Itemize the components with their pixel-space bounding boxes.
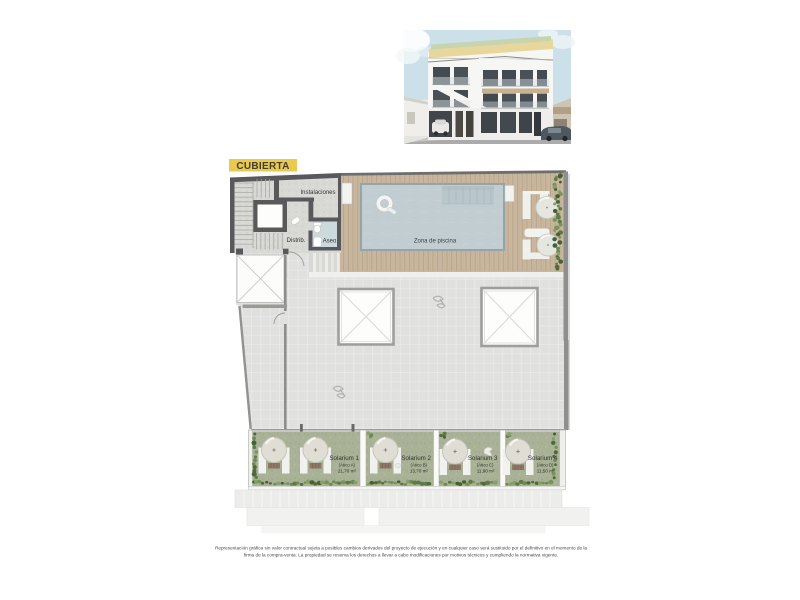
svg-text:Zona de piscina: Zona de piscina <box>414 239 457 245</box>
svg-text:Representación gráfica sin val: Representación gráfica sin valor contrac… <box>215 546 587 551</box>
svg-text:Solarium 1: Solarium 1 <box>329 455 359 462</box>
svg-text:firma de la compra-venta. La p: firma de la compra-venta. La propiedad s… <box>244 553 558 558</box>
svg-text:Solarium 2: Solarium 2 <box>401 455 431 462</box>
svg-text:(Ático C): (Ático C) <box>477 463 494 468</box>
svg-text:11,90 m²: 11,90 m² <box>477 469 495 474</box>
svg-text:Solarium 4: Solarium 4 <box>528 455 558 462</box>
svg-text:(Ático B): (Ático B) <box>411 463 428 468</box>
svg-text:(Ático D): (Ático D) <box>537 463 554 468</box>
svg-text:Distrib.: Distrib. <box>287 238 306 244</box>
svg-text:Solarium 3: Solarium 3 <box>468 455 498 462</box>
svg-text:CUBIERTA: CUBIERTA <box>236 161 289 172</box>
svg-text:(Ático A): (Ático A) <box>339 463 356 468</box>
svg-text:21,70 m²: 21,70 m² <box>338 469 357 474</box>
svg-text:Aseo: Aseo <box>323 238 337 244</box>
svg-text:Instalaciones: Instalaciones <box>300 190 335 196</box>
svg-text:13,70 m²: 13,70 m² <box>410 469 429 474</box>
svg-text:11,50 m²: 11,50 m² <box>537 469 555 474</box>
